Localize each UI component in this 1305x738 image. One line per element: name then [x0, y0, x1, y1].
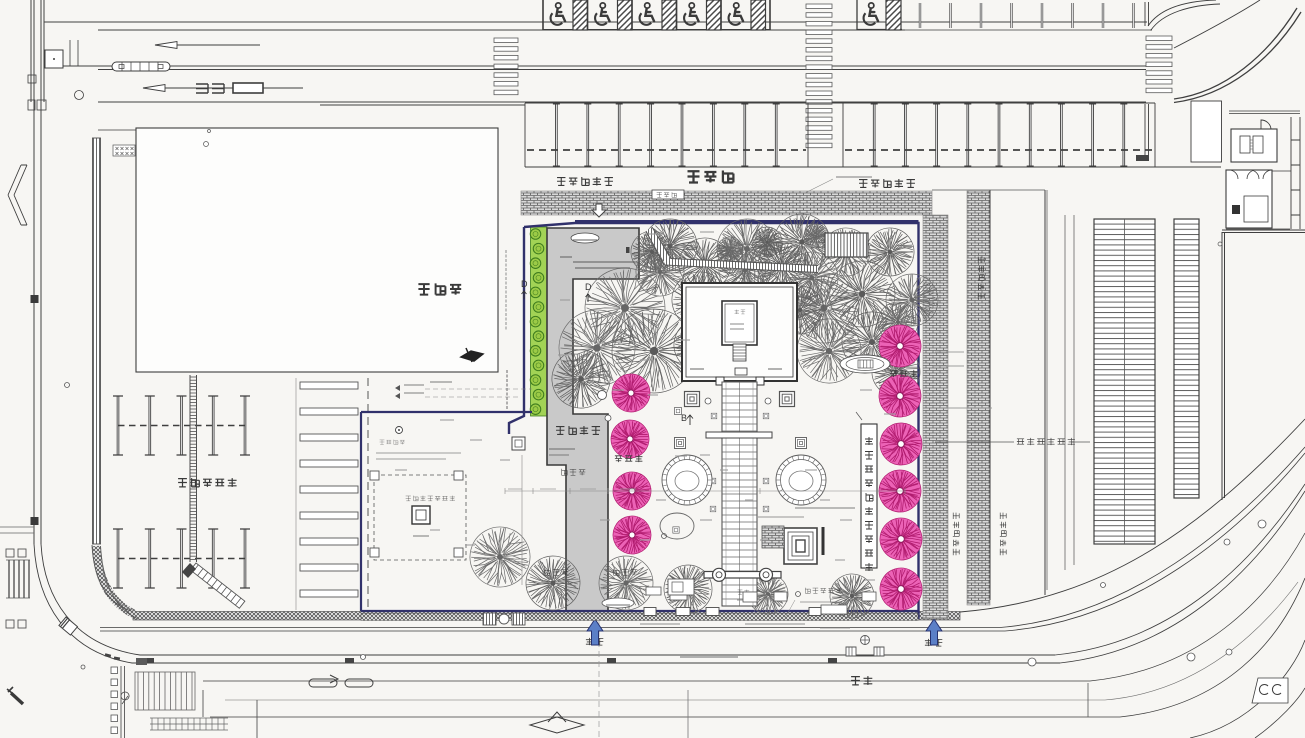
svg-text:D: D	[521, 279, 528, 289]
svg-text:D: D	[585, 282, 592, 292]
svg-text:B: B	[681, 413, 687, 423]
